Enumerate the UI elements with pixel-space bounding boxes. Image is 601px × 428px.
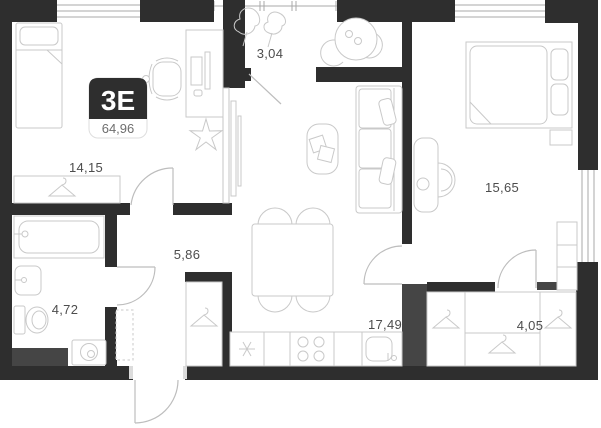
window-top-right — [455, 5, 545, 17]
apartment-badge: 3E 64,96 — [89, 78, 147, 138]
room-area-bathroom: 4,72 — [52, 302, 79, 317]
bathroom-shaft — [12, 348, 68, 366]
room-area-kitchen-living: 17,49 — [368, 317, 402, 332]
chair-icon-2 — [438, 163, 455, 197]
badge-area-label: 64,96 — [102, 121, 135, 136]
hallway-furniture — [116, 282, 222, 366]
badge-type-label: 3E — [101, 85, 135, 116]
room-area-balcony: 3,04 — [257, 46, 284, 61]
room-area-hallway: 5,86 — [174, 247, 201, 262]
desk-icon — [186, 30, 223, 117]
bedroom-right-furniture — [414, 42, 577, 290]
wardrobe-icon — [14, 176, 120, 203]
desk-icon-2 — [414, 138, 438, 212]
plant-icon — [190, 119, 222, 150]
room-area-bedroom-right: 15,65 — [485, 180, 519, 195]
thin-partition — [223, 88, 229, 203]
office-chair-icon — [143, 58, 182, 100]
bedside-table-icon — [550, 130, 572, 145]
wardrobe-room-furniture — [427, 292, 576, 366]
toilet-icon — [14, 306, 48, 334]
bedroom-left-door — [131, 168, 173, 205]
tv-icon — [231, 101, 241, 196]
dining-table-icon — [252, 208, 333, 312]
wardrobe-casework — [427, 292, 576, 366]
floor-plan: 14,15 3,04 5,86 4,72 17,49 15,65 4,05 3E… — [0, 0, 601, 428]
bathtub-icon — [14, 216, 104, 258]
entrance-door — [129, 366, 187, 423]
wardrobe-room-door — [498, 250, 536, 288]
single-bed-icon — [16, 23, 62, 128]
sofa-icon — [356, 86, 402, 213]
hall-closet-icon — [186, 282, 222, 366]
bathroom-furniture — [14, 216, 106, 365]
bedroom-right-door — [364, 246, 402, 284]
washbasin-icon — [15, 266, 41, 295]
window-right — [582, 170, 594, 262]
washing-machine-icon — [72, 340, 106, 365]
double-bed-icon — [466, 42, 572, 128]
window-top-left — [57, 5, 140, 17]
bathroom-door — [117, 267, 155, 305]
kitchen-counter — [230, 332, 402, 366]
coffee-table-icon — [307, 124, 338, 174]
balcony-door — [249, 74, 281, 104]
shoe-cabinet-icon — [116, 310, 133, 360]
kitchen-shaft — [402, 284, 427, 366]
balcony-table-icon — [335, 18, 377, 60]
shelf-icon — [557, 222, 577, 290]
room-area-wardrobe: 4,05 — [517, 318, 544, 333]
room-area-bedroom-left: 14,15 — [69, 160, 103, 175]
